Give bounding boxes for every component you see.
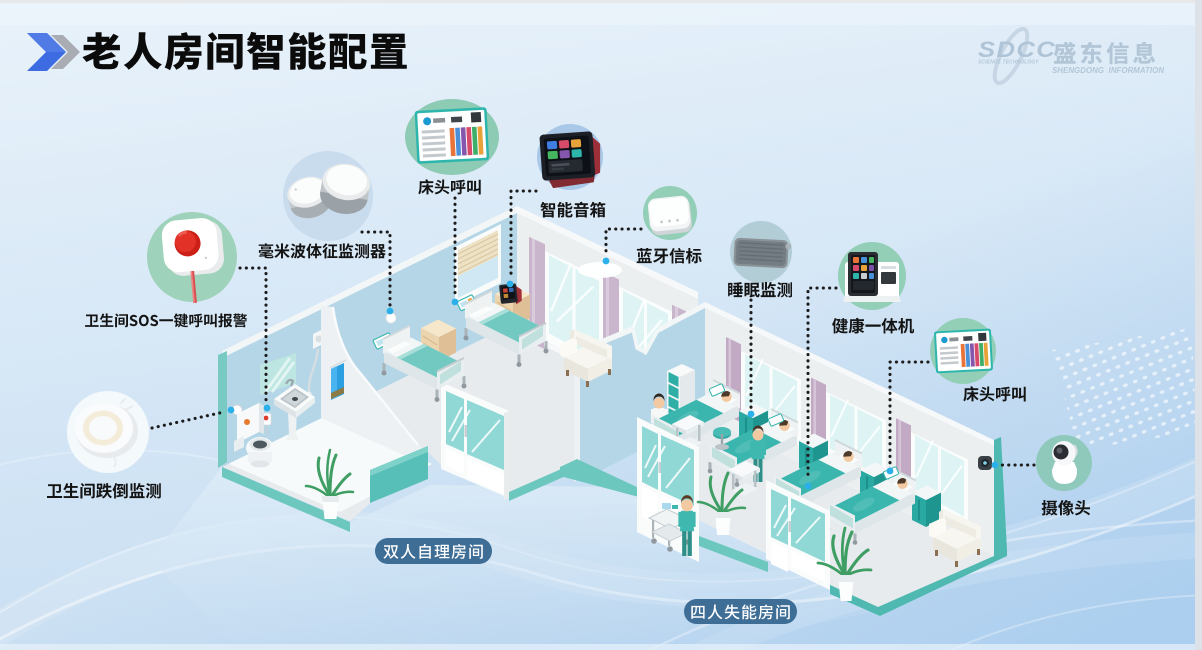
svg-text:SHENGDONG INFORMATION: SHENGDONG INFORMATION bbox=[1052, 66, 1164, 75]
svg-text:SCIENCE TECHNOLOGY: SCIENCE TECHNOLOGY bbox=[978, 60, 1039, 66]
